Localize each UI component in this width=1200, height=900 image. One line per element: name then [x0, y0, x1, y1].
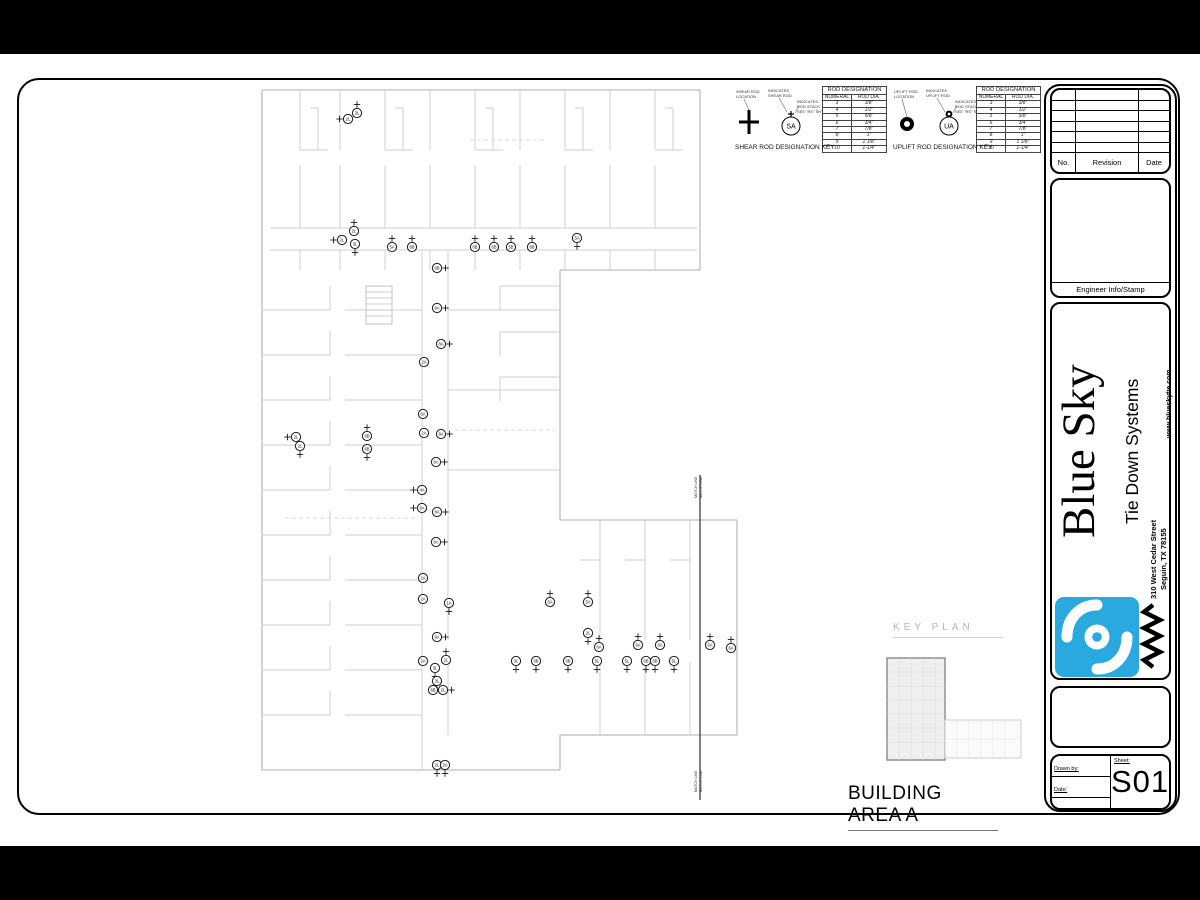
svg-text:5L: 5L — [625, 659, 630, 664]
rod-marker: 6B — [362, 424, 371, 440]
svg-text:2A: 2A — [420, 659, 425, 664]
rod-marker: 6A — [705, 633, 714, 649]
uplift-badge-label: UA — [944, 124, 954, 131]
svg-text:5A: 5A — [574, 236, 579, 241]
svg-text:6B: 6B — [533, 659, 538, 664]
rod-marker: 6A — [418, 409, 427, 418]
svg-text:6A: 6A — [419, 506, 424, 511]
svg-text:2A: 2A — [420, 597, 425, 602]
svg-text:2A: 2A — [420, 576, 425, 581]
uplift-key-title: UPLIFT ROD DESIGNATION KEY — [893, 144, 992, 151]
svg-text:6B: 6B — [364, 447, 369, 452]
rod-marker: 2A — [418, 656, 427, 665]
svg-text:6B: 6B — [565, 659, 570, 664]
match-line-label: MATCH LINE — [699, 770, 703, 792]
svg-text:6B: 6B — [652, 659, 657, 664]
revision-cell — [1139, 132, 1169, 143]
callout-text: LOCATION — [736, 94, 756, 99]
rod-marker: 2L — [336, 114, 352, 123]
rod-marker: 2L — [432, 760, 441, 776]
svg-text:6A: 6A — [434, 635, 439, 640]
uplift-rod-designation-key: UPLIFT ROD LOCATION UA INDICATES UPLIFT … — [893, 86, 1041, 152]
rod-marker: 6A — [633, 633, 642, 649]
title-block: No.RevisionDate Engineer Info/Stamp Blue… — [1044, 84, 1177, 812]
revision-cell — [1052, 101, 1076, 112]
rod-marker: 2L — [284, 432, 300, 441]
svg-text:6A: 6A — [420, 412, 425, 417]
svg-text:6B: 6B — [643, 659, 648, 664]
svg-text:2L: 2L — [352, 229, 357, 234]
scale-field: Scale: — [1052, 798, 1110, 810]
rod-marker: 2A — [440, 760, 449, 776]
svg-text:2L: 2L — [346, 117, 351, 122]
rod-marker: 8A — [436, 339, 452, 348]
rod-marker: 2L — [441, 648, 450, 664]
sheet-number: S01 — [1111, 764, 1169, 800]
shear-rod-designation-key: SHEAR ROD LOCATION SA INDICATES SHEAR RO… — [735, 86, 887, 152]
rod-marker: 6B — [650, 656, 659, 672]
sheet-number-cell: Sheet: S01 — [1111, 756, 1169, 808]
svg-text:3L: 3L — [353, 242, 358, 247]
svg-text:6A: 6A — [657, 643, 662, 648]
revision-cell — [1076, 111, 1139, 122]
rod-marker: 2L — [349, 219, 358, 235]
uplift-rod-symbols: UPLIFT ROD LOCATION UA INDICATES UPLIFT … — [893, 86, 981, 140]
revision-cell — [1139, 143, 1169, 154]
svg-text:5B: 5B — [508, 245, 513, 250]
match-line-label: MATCH LINE — [694, 770, 698, 792]
svg-text:6A: 6A — [433, 540, 438, 545]
svg-text:5A: 5A — [389, 245, 394, 250]
rod-marker: 6A — [594, 635, 603, 651]
rod-marker: 6A — [545, 590, 554, 606]
svg-text:2L: 2L — [586, 631, 591, 636]
revision-cell — [1076, 143, 1139, 154]
rod-marker: 5B — [506, 235, 515, 251]
callout-text: SEE "RS" SHT. — [797, 109, 823, 114]
rod-marker: 8A — [432, 507, 448, 516]
brand-tagline: Tie Down Systems — [1122, 304, 1143, 599]
revision-cell — [1076, 90, 1139, 101]
svg-text:6B: 6B — [409, 245, 414, 250]
revision-cell — [1076, 132, 1139, 143]
rod-marker: 2A — [419, 428, 428, 437]
engineer-stamp-box: Engineer Info/Stamp — [1050, 178, 1171, 298]
svg-text:6A: 6A — [434, 306, 439, 311]
svg-text:6B: 6B — [434, 266, 439, 271]
hurricane-logo-icon — [1054, 596, 1171, 678]
rod-marker: 6B — [563, 656, 572, 672]
svg-text:5L: 5L — [672, 659, 677, 664]
svg-text:6B: 6B — [529, 245, 534, 250]
rod-marker: 5A — [387, 235, 396, 251]
rod-marker: 6B — [407, 235, 416, 251]
key-plan-map — [883, 652, 1028, 770]
svg-text:6B: 6B — [491, 245, 496, 250]
revision-cell — [1139, 111, 1169, 122]
rod-marker: 6B — [531, 656, 540, 672]
svg-text:2A: 2A — [421, 431, 426, 436]
svg-text:6A: 6A — [707, 643, 712, 648]
rod-marker: 6A — [432, 303, 448, 312]
leader-line — [937, 98, 945, 112]
revision-col-revision: Revision — [1076, 153, 1139, 172]
rod-marker: 1A — [444, 598, 453, 614]
rod-marker: 8A — [436, 429, 452, 438]
revision-cell — [1052, 90, 1076, 101]
rod-marker: 5A — [572, 233, 581, 249]
rod-marker: 6A — [431, 537, 447, 546]
svg-text:2A: 2A — [442, 763, 447, 768]
key-plan-label: KEY PLAN — [893, 622, 1003, 638]
key-plan-area-a — [887, 658, 945, 760]
match-line-label: MATCH LINE — [699, 476, 703, 498]
rod-marker: 2A — [418, 573, 427, 582]
revision-cell — [1139, 122, 1169, 133]
svg-text:3L: 3L — [433, 666, 438, 671]
svg-text:2L: 2L — [340, 238, 345, 243]
callout-text: LOCATION — [894, 94, 914, 99]
svg-text:4A: 4A — [419, 488, 424, 493]
svg-text:6A: 6A — [728, 646, 733, 651]
rod-marker: 6A — [432, 632, 448, 641]
revision-cell — [1052, 132, 1076, 143]
rod-marker: 3L — [511, 656, 520, 672]
svg-text:6B: 6B — [472, 245, 477, 250]
revision-cell — [1052, 111, 1076, 122]
svg-text:2A: 2A — [421, 360, 426, 365]
leader-line — [902, 99, 907, 117]
rod-marker: 6A — [410, 503, 426, 512]
rod-marker: 2L — [438, 685, 454, 694]
brand-box: Blue Sky Tie Down Systems 310 West Cedar… — [1050, 302, 1171, 680]
rod-marker: 4A — [410, 485, 426, 494]
rod-marker: 3L — [352, 101, 361, 117]
rod-marker: 6B — [470, 235, 479, 251]
rod-marker: 6A — [431, 457, 447, 466]
svg-text:3L: 3L — [355, 111, 360, 116]
svg-text:8A: 8A — [434, 510, 439, 515]
rod-marker: 2A — [418, 594, 427, 603]
rod-marker: 6B — [527, 235, 536, 251]
revision-cell — [1052, 143, 1076, 154]
leader-line — [779, 98, 787, 112]
svg-text:1A: 1A — [446, 601, 451, 606]
brand-website: www.blueskytie.com — [1166, 324, 1173, 484]
rod-marker: 2A — [419, 357, 428, 366]
leader-line — [744, 99, 749, 110]
floor-plan: MATCH LINEMATCH LINEMATCH LINEMATCH LINE… — [250, 85, 750, 805]
svg-text:2L: 2L — [441, 688, 446, 693]
rod-marker: 2L — [295, 441, 304, 457]
shear-key-title: SHEAR ROD DESIGNATION KEY — [735, 144, 835, 151]
rod-marker: 5L — [622, 656, 631, 672]
rod-designation-table: ROD DESIGNATIONNUMERALROD DIA.33/8"41/2"… — [822, 86, 887, 153]
svg-text:6B: 6B — [364, 434, 369, 439]
brand-name: Blue Sky — [1052, 304, 1106, 599]
drawn-by-field: Drawn by: — [1052, 756, 1110, 777]
rod-designation-table: ROD DESIGNATIONNUMERALROD DIA.33/8"41/2"… — [976, 86, 1041, 153]
rod-marker: 6A — [726, 636, 735, 652]
rod-marker: 6B — [432, 263, 448, 272]
rod-marker: 2L — [583, 628, 592, 644]
callout-text: UPLIFT ROD — [926, 93, 950, 98]
svg-text:5L: 5L — [595, 659, 600, 664]
revision-cell — [1052, 122, 1076, 133]
svg-text:6A: 6A — [596, 645, 601, 650]
revision-cell — [1139, 90, 1169, 101]
svg-text:2L: 2L — [298, 444, 303, 449]
svg-text:2L: 2L — [435, 763, 440, 768]
svg-text:6A: 6A — [433, 460, 438, 465]
svg-text:8A: 8A — [438, 342, 443, 347]
drawing-area-title: BUILDING AREA A — [848, 783, 998, 831]
rod-marker: 6B — [489, 235, 498, 251]
svg-text:6B: 6B — [430, 688, 435, 693]
rod-marker: 2L — [330, 235, 346, 244]
revision-col-no: No. — [1052, 153, 1076, 172]
svg-text:5A: 5A — [585, 600, 590, 605]
svg-text:2L: 2L — [294, 435, 299, 440]
shear-badge-label: SA — [786, 124, 796, 131]
svg-text:8A: 8A — [438, 432, 443, 437]
revision-cell — [1139, 101, 1169, 112]
sheet-info-box: Drawn by: Date: Scale: Sheet: S01 — [1050, 754, 1171, 810]
revision-cell — [1076, 122, 1139, 133]
rod-marker: 6B — [362, 444, 371, 460]
shear-rod-symbols: SHEAR ROD LOCATION SA INDICATES SHEAR RO… — [735, 86, 823, 140]
date-field: Date: — [1052, 777, 1110, 798]
drawing-sheet-stage: MATCH LINEMATCH LINEMATCH LINEMATCH LINE… — [0, 0, 1200, 900]
callout-text: SHEAR ROD — [768, 93, 792, 98]
svg-text:2L: 2L — [444, 658, 449, 663]
svg-text:3L: 3L — [514, 659, 519, 664]
notes-box — [1050, 686, 1171, 748]
rod-marker: 6B — [641, 656, 650, 672]
engineer-stamp-label: Engineer Info/Stamp — [1052, 282, 1169, 296]
svg-text:6A: 6A — [547, 600, 552, 605]
rod-marker: 3L — [350, 239, 359, 255]
revision-col-date: Date — [1139, 153, 1169, 172]
match-line-label: MATCH LINE — [694, 476, 698, 498]
rod-marker: 5A — [583, 590, 592, 606]
svg-text:3L: 3L — [435, 679, 440, 684]
rod-marker: 5L — [669, 656, 678, 672]
zigzag-icon — [1144, 605, 1160, 667]
svg-text:6A: 6A — [635, 643, 640, 648]
revision-table: No.RevisionDate — [1050, 88, 1171, 174]
rod-marker: 6A — [655, 633, 664, 649]
revision-cell — [1076, 101, 1139, 112]
